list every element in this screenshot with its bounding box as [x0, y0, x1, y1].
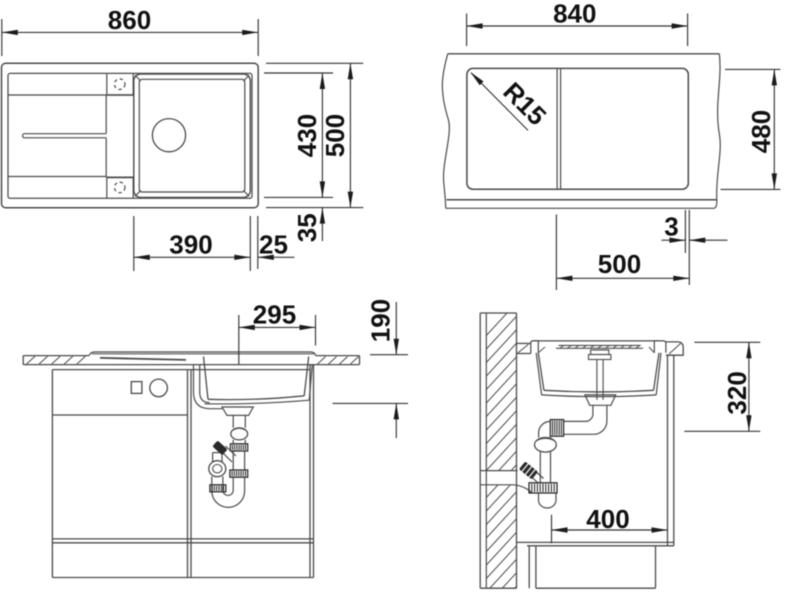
svg-text:480: 480 [746, 110, 776, 153]
svg-text:390: 390 [169, 230, 212, 260]
svg-text:500: 500 [598, 249, 641, 279]
svg-text:400: 400 [586, 504, 629, 534]
svg-text:35: 35 [292, 213, 322, 242]
svg-text:295: 295 [253, 300, 296, 330]
svg-text:840: 840 [553, 0, 596, 29]
svg-text:430: 430 [292, 114, 322, 157]
svg-text:860: 860 [108, 5, 151, 35]
svg-text:320: 320 [722, 371, 752, 414]
svg-text:3: 3 [664, 212, 678, 242]
svg-text:190: 190 [366, 299, 396, 342]
svg-text:500: 500 [320, 114, 350, 157]
svg-text:25: 25 [259, 230, 288, 260]
